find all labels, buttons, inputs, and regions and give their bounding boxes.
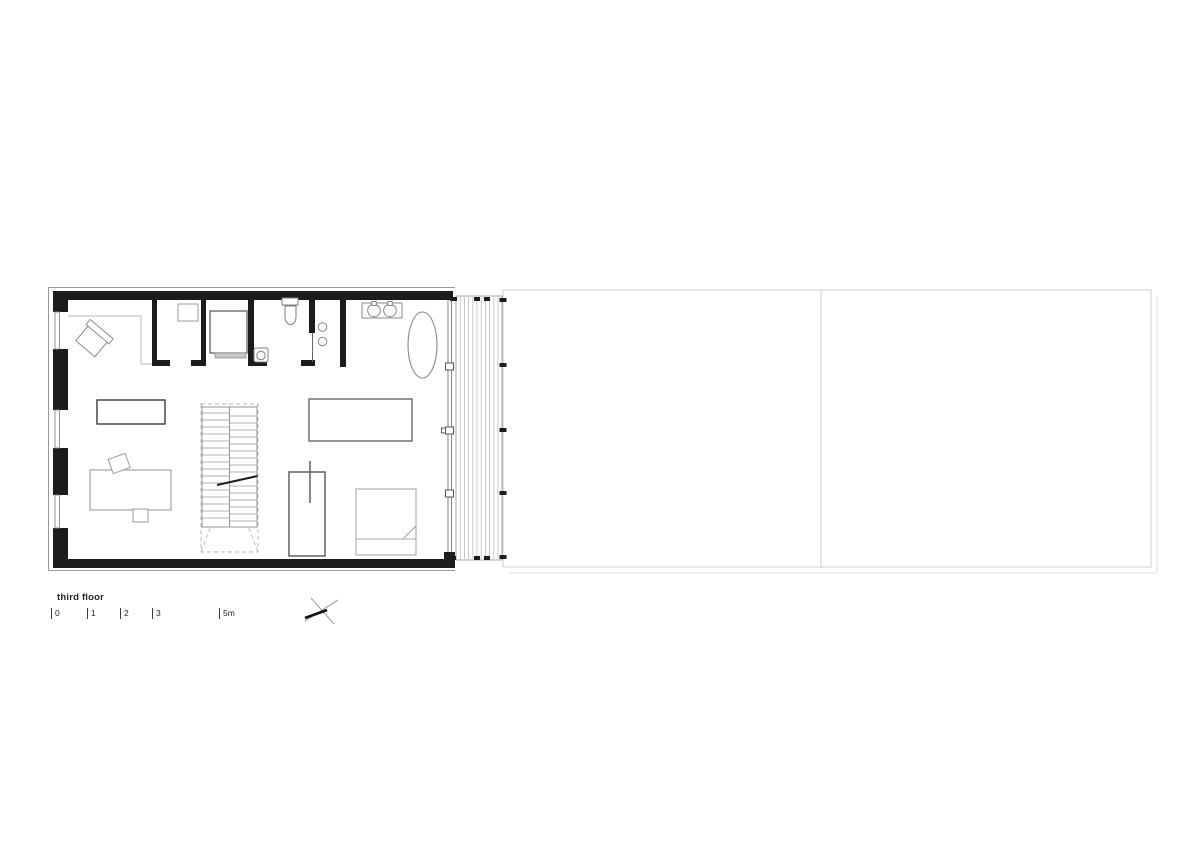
bed [356, 489, 416, 555]
faucet [372, 302, 376, 306]
partition-closet-left [152, 300, 157, 360]
plumbing-pipes [318, 323, 327, 346]
elevator-car [210, 311, 247, 353]
scale-mark-1: 1 [87, 608, 96, 619]
vanity-basin [368, 304, 381, 317]
wall-west-corner-top [53, 291, 68, 312]
north-mark [305, 598, 338, 624]
deck-board-lines [460, 297, 498, 559]
scale-mark-3: 3 [152, 608, 161, 619]
wall-south [53, 559, 455, 568]
partition-wc-right [309, 300, 315, 333]
window [55, 410, 60, 448]
drawing-sheet: third floor 0 1 2 3 5m [0, 0, 1200, 849]
toilet-bowl [285, 306, 296, 325]
wall-west-pier [53, 349, 68, 410]
window [55, 312, 60, 349]
partition-elevator-right [248, 300, 254, 360]
elevator [210, 311, 247, 358]
scale-mark-2: 2 [120, 608, 129, 619]
table [309, 399, 412, 441]
facade-mullion [446, 363, 454, 370]
scale-bar: 0 1 2 3 5m [51, 608, 271, 622]
vanity-basin [384, 304, 397, 317]
armchair [74, 320, 113, 359]
wall-west-pier [53, 448, 68, 495]
plan-title: third floor [57, 592, 104, 603]
wc-room [254, 298, 298, 362]
elevator-door [215, 353, 246, 358]
window [55, 495, 60, 528]
desk-stool [133, 509, 148, 522]
toilet-cistern [282, 298, 298, 305]
wall-north [53, 291, 453, 300]
staircase [201, 404, 258, 552]
closet-shelf [178, 304, 198, 321]
site-outline [503, 290, 1157, 573]
scale-mark-5m: 5m [219, 608, 235, 619]
wall-west-corner-bottom [53, 528, 68, 568]
sideboard [97, 400, 165, 424]
facade-door-mullion [446, 427, 454, 434]
partition-elevator-left [201, 300, 206, 360]
desk [90, 470, 171, 510]
site-plot-right [821, 290, 1151, 567]
door-handle [442, 428, 446, 433]
faucet [388, 302, 392, 306]
floor-plan-svg [0, 0, 1200, 849]
west-windows [55, 312, 60, 528]
wardrobe-partition [289, 461, 325, 556]
sink-basin [257, 351, 265, 359]
glass-facade [442, 300, 454, 559]
scale-mark-0: 0 [51, 608, 60, 619]
wall-east-stub-bottom [444, 552, 455, 562]
wall-east-stub-top [450, 297, 457, 301]
terrace-deck [450, 296, 507, 560]
partition-bath-left [340, 300, 346, 367]
bathroom [362, 302, 437, 379]
facade-mullion [446, 490, 454, 497]
site-plot-left [503, 290, 821, 567]
bathtub [408, 312, 437, 378]
